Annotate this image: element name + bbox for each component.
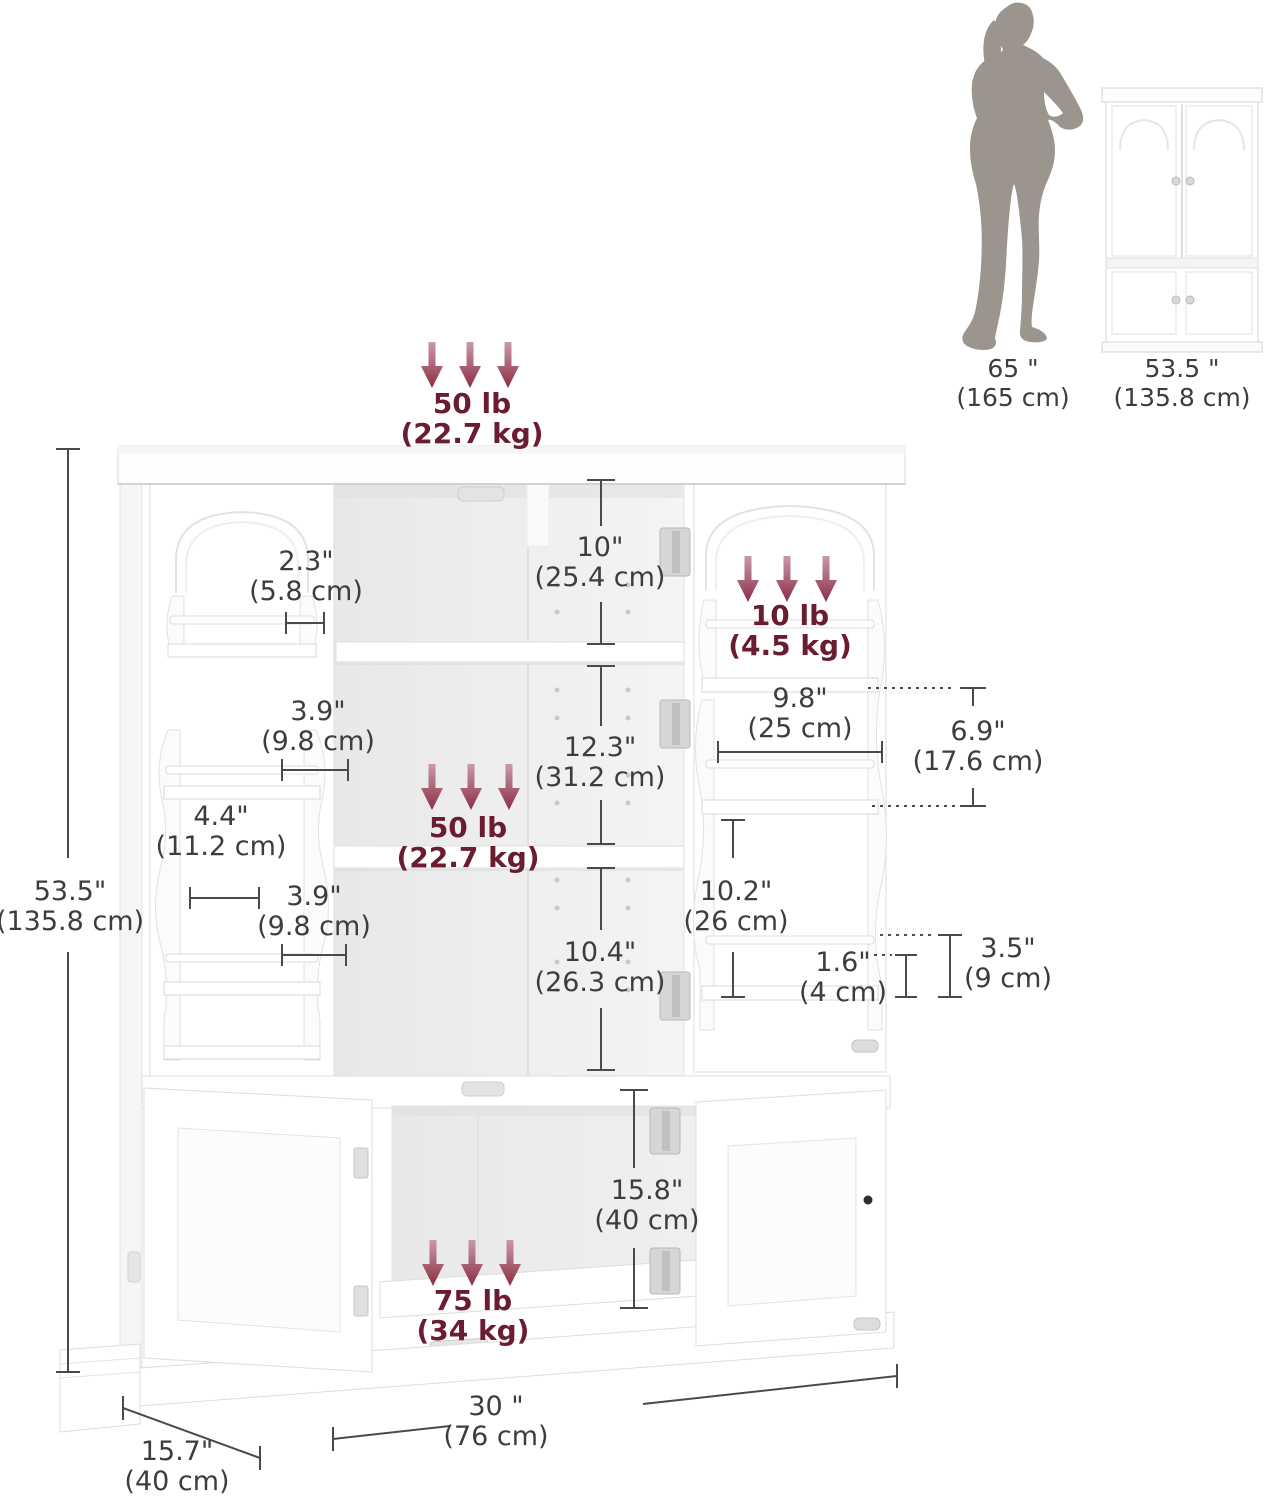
door-knob-hole	[864, 1196, 873, 1205]
weight-value: 10 lb	[728, 601, 852, 631]
dim-top-compartment-height: 10" (25.4 cm)	[535, 533, 666, 593]
comparison-metric: (165 cm)	[956, 383, 1069, 412]
weight-value: 50 lb	[400, 389, 543, 419]
dim-value: 10"	[535, 533, 666, 563]
dim-metric: (11.2 cm)	[156, 832, 287, 862]
comparison-value: 53.5 "	[1113, 354, 1250, 383]
dim-metric: (9 cm)	[964, 964, 1052, 994]
dim-value: 2.3"	[249, 547, 363, 577]
dim-value: 3.9"	[257, 882, 371, 912]
dim-metric: (9.8 cm)	[257, 912, 371, 942]
cabinet-top-panel	[118, 446, 905, 484]
dim-overall-width: 30 " (76 cm)	[443, 1392, 548, 1452]
comparison-value: 65 "	[956, 354, 1069, 383]
weight-metric: (22.7 kg)	[396, 843, 539, 873]
dim-metric: (135.8 cm)	[0, 907, 144, 937]
dim-value: 12.3"	[535, 733, 666, 763]
weight-metric: (4.5 kg)	[728, 631, 852, 661]
weight-arrows-top-icon	[421, 342, 519, 388]
dim-metric: (25 cm)	[747, 714, 852, 744]
dim-left-rack-upper-gap: 3.9" (9.8 cm)	[261, 697, 375, 757]
dim-metric: (26.3 cm)	[535, 968, 666, 998]
dim-overall-height: 53.5" (135.8 cm)	[0, 877, 144, 937]
dim-value: 6.9"	[913, 717, 1044, 747]
comparison-person-height: 65 " (165 cm)	[956, 354, 1069, 412]
dim-metric: (25.4 cm)	[535, 563, 666, 593]
bottom-right-door	[696, 1090, 886, 1346]
weight-label-middle-shelf: 50 lb (22.7 kg)	[396, 813, 539, 873]
dim-value: 3.5"	[964, 934, 1052, 964]
dim-value: 15.8"	[594, 1176, 699, 1206]
dim-metric: (76 cm)	[443, 1422, 548, 1452]
bottom-left-door	[144, 1088, 372, 1372]
weight-metric: (34 kg)	[417, 1316, 530, 1346]
dim-value: 4.4"	[156, 802, 287, 832]
dim-metric: (26 cm)	[683, 907, 788, 937]
dim-bottom-compartment-height: 15.8" (40 cm)	[594, 1176, 699, 1236]
dim-left-rack-lower-gap: 3.9" (9.8 cm)	[257, 882, 371, 942]
weight-label-bottom-compartment: 75 lb (34 kg)	[417, 1286, 530, 1346]
weight-value: 75 lb	[417, 1286, 530, 1316]
dim-value: 9.8"	[747, 684, 852, 714]
dim-metric: (31.2 cm)	[535, 763, 666, 793]
dim-metric: (40 cm)	[594, 1206, 699, 1236]
dim-metric: (4 cm)	[799, 978, 887, 1008]
dim-right-rack-width: 9.8" (25 cm)	[747, 684, 852, 744]
dim-rack-lip-height: 1.6" (4 cm)	[799, 948, 887, 1008]
weight-label-top-panel: 50 lb (22.7 kg)	[400, 389, 543, 449]
dim-left-rack-top-depth: 2.3" (5.8 cm)	[249, 547, 363, 607]
dim-lower-compartment-height: 10.4" (26.3 cm)	[535, 938, 666, 998]
dim-rack-shelf-height: 3.5" (9 cm)	[964, 934, 1052, 994]
dim-value: 53.5"	[0, 877, 144, 907]
dim-metric: (17.6 cm)	[913, 747, 1044, 777]
dim-left-door-side-depth: 4.4" (11.2 cm)	[156, 802, 287, 862]
dim-value: 15.7"	[124, 1437, 229, 1467]
person-silhouette	[962, 3, 1083, 350]
weight-label-door-rack: 10 lb (4.5 kg)	[728, 601, 852, 661]
dim-value: 10.2"	[683, 877, 788, 907]
dim-middle-compartment-height: 12.3" (31.2 cm)	[535, 733, 666, 793]
dim-value: 1.6"	[799, 948, 887, 978]
dim-overall-depth: 15.7" (40 cm)	[124, 1437, 229, 1497]
weight-metric: (22.7 kg)	[400, 419, 543, 449]
dim-value: 3.9"	[261, 697, 375, 727]
comparison-metric: (135.8 cm)	[1113, 383, 1250, 412]
dim-value: 10.4"	[535, 938, 666, 968]
weight-value: 50 lb	[396, 813, 539, 843]
dim-metric: (40 cm)	[124, 1467, 229, 1497]
dim-right-rack-gap-upper: 6.9" (17.6 cm)	[913, 717, 1044, 777]
dim-value: 30 "	[443, 1392, 548, 1422]
comparison-cabinet-height: 53.5 " (135.8 cm)	[1113, 354, 1250, 412]
dim-metric: (5.8 cm)	[249, 577, 363, 607]
product-dimension-diagram: 50 lb (22.7 kg) 10 lb (4.5 kg) 50 lb (22…	[0, 0, 1265, 1500]
dim-right-rack-gap-lower: 10.2" (26 cm)	[683, 877, 788, 937]
dim-metric: (9.8 cm)	[261, 727, 375, 757]
cabinet-thumbnail	[1102, 88, 1262, 352]
